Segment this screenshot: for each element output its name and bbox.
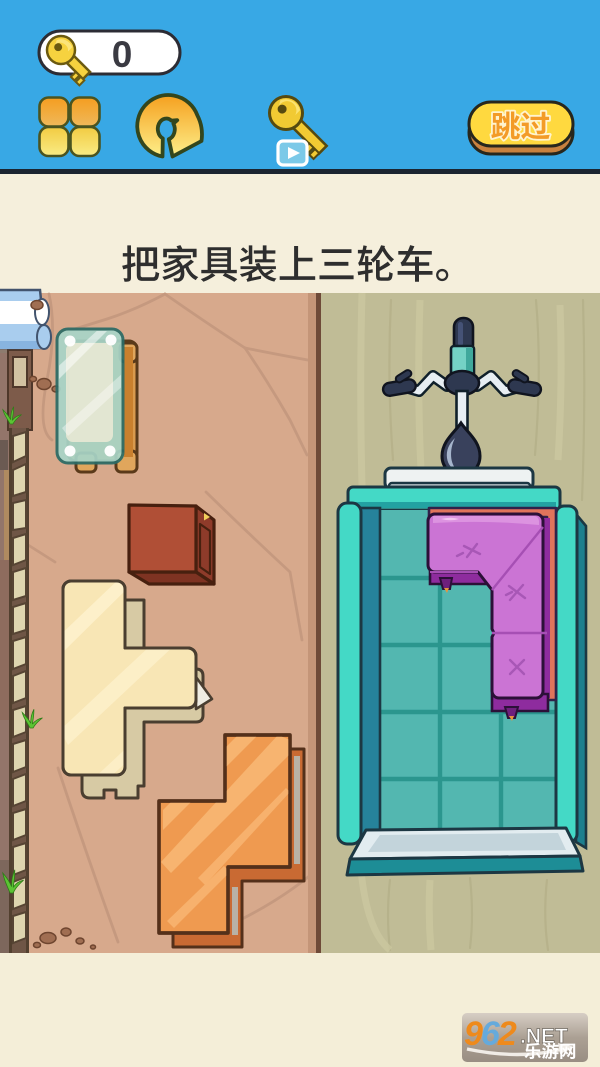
svg-text:0: 0 xyxy=(112,34,133,75)
svg-text:962: 962 xyxy=(464,1015,517,1053)
